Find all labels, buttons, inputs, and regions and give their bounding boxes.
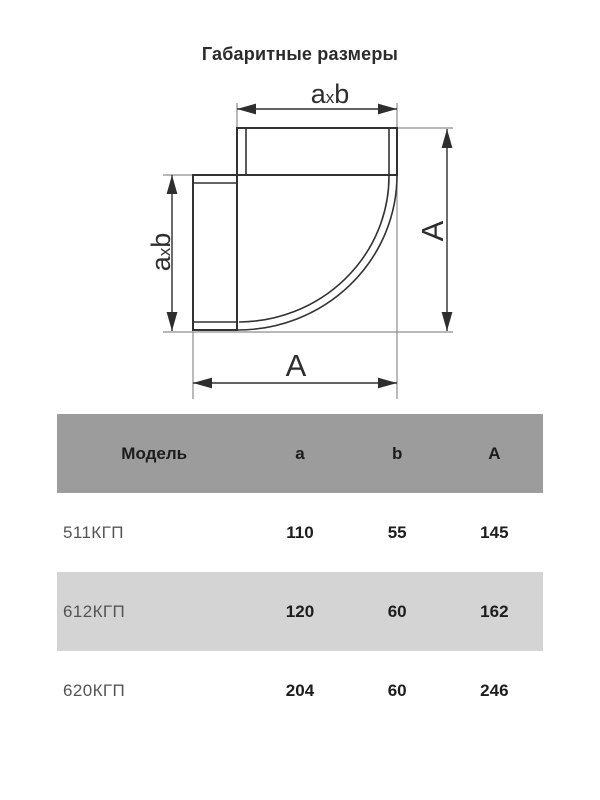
cell-b: 55 — [349, 523, 446, 543]
elbow-inner-curve — [239, 176, 389, 322]
cell-model: 511КГП — [57, 523, 251, 543]
cell-a: 120 — [251, 602, 348, 622]
cell-model: 612КГП — [57, 602, 251, 622]
cell-a: 204 — [251, 681, 348, 701]
header-cell-a: a — [251, 444, 348, 464]
table-header-row: Модель a b A — [57, 414, 543, 493]
dim-label-A-right: A — [415, 220, 450, 241]
table-row-620kgp: 620КГП 204 60 246 — [57, 651, 543, 730]
header-cell-A: A — [446, 444, 543, 464]
dimensions-table: Модель a b A 511КГП 110 55 145 612КГП 12… — [57, 414, 543, 730]
product-dimensions-page: Габаритные размеры — [0, 0, 600, 800]
cell-b: 60 — [349, 602, 446, 622]
elbow-dimension-diagram: axb axb A A — [0, 0, 600, 412]
cell-a: 110 — [251, 523, 348, 543]
dim-label-A-bottom: A — [286, 348, 307, 383]
header-cell-b: b — [349, 444, 446, 464]
dim-label-axb-top: axb — [311, 79, 350, 109]
table-row-612kgp: 612КГП 120 60 162 — [57, 572, 543, 651]
cell-b: 60 — [349, 681, 446, 701]
elbow-outline — [193, 128, 397, 330]
cell-A: 246 — [446, 681, 543, 701]
extension-lines — [163, 103, 453, 399]
cell-A: 162 — [446, 602, 543, 622]
dim-label-axb-side: axb — [146, 233, 176, 272]
dimension-lines — [167, 104, 453, 389]
table-row-511kgp: 511КГП 110 55 145 — [57, 493, 543, 572]
cell-model: 620КГП — [57, 681, 251, 701]
cell-A: 145 — [446, 523, 543, 543]
header-cell-model: Модель — [57, 444, 251, 464]
elbow-outer-curve — [238, 175, 397, 330]
